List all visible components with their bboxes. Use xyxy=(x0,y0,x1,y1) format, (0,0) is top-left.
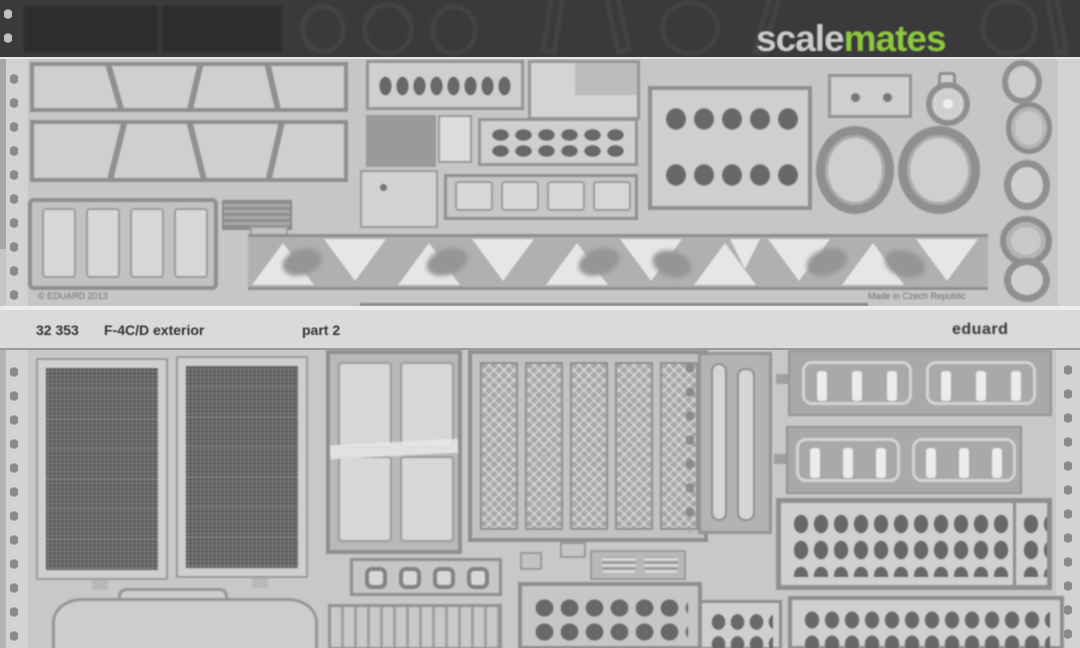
strip-divider xyxy=(265,122,284,182)
window-pane xyxy=(547,181,585,211)
ghost-circle-shape xyxy=(300,4,346,54)
pe-curved-cowl-part xyxy=(52,598,318,648)
pe-slot-panel-1 xyxy=(788,350,1052,416)
window-slot xyxy=(852,371,862,401)
hinge-detail xyxy=(644,557,678,573)
strip-divider xyxy=(107,122,127,182)
sprue-hole-column xyxy=(10,67,18,303)
pe-ring-large xyxy=(816,126,894,214)
pe-strip-round-holes xyxy=(350,558,502,596)
strip-divider xyxy=(187,64,204,112)
window-slot xyxy=(926,448,936,478)
etched-hole-row xyxy=(662,104,802,134)
hinge-detail xyxy=(602,557,636,573)
pe-plate-two-hole-rows xyxy=(648,86,812,210)
pe-round-part xyxy=(1004,160,1050,210)
grille-slat xyxy=(480,362,518,530)
ghost-bar-shape xyxy=(604,0,632,55)
pe-tall-slotted-part xyxy=(698,352,772,534)
window-pane xyxy=(501,181,539,211)
pe-small-tab xyxy=(560,542,586,558)
sheet-right-margin xyxy=(1058,59,1080,308)
pe-perforated-plate-3 xyxy=(698,600,782,648)
pe-mesh-screen-2 xyxy=(176,356,308,578)
eduard-logo-text: eduard xyxy=(952,321,1008,339)
pe-round-part xyxy=(1004,258,1050,302)
etched-hole-grid xyxy=(802,608,1050,648)
watermark-mates-text: mates xyxy=(844,18,946,59)
rounded-hole xyxy=(467,567,489,589)
window-slot xyxy=(992,448,1002,478)
pe-round-part xyxy=(1006,102,1052,154)
etched-hole xyxy=(883,93,892,102)
pe-slot-panel-2 xyxy=(786,426,1022,494)
lower-etch-sheet xyxy=(0,348,1080,648)
sprue-hole-column xyxy=(1064,358,1072,644)
part-number-text: part 2 xyxy=(302,322,340,338)
window-slot xyxy=(959,448,969,478)
pe-round-part xyxy=(1002,60,1042,104)
etched-recess xyxy=(575,63,637,95)
pe-small-tab xyxy=(252,578,268,588)
window-slot xyxy=(876,448,886,478)
grille-slat xyxy=(525,362,563,530)
dark-fret-shape xyxy=(162,6,282,52)
zigzag-cutout xyxy=(472,239,534,281)
window-pane xyxy=(593,181,631,211)
strip-divider xyxy=(106,64,125,112)
window-slot xyxy=(843,448,853,478)
watermark-scale-text: scale xyxy=(756,18,844,59)
strip-divider xyxy=(187,122,207,182)
pe-teardrop-part xyxy=(926,82,970,126)
door-quadrant xyxy=(338,456,392,542)
dark-fret-shape xyxy=(24,6,158,52)
pe-slat-strip-1 xyxy=(30,62,348,112)
door-quadrant xyxy=(400,362,454,448)
pe-small-part xyxy=(520,552,542,570)
etched-hole-row xyxy=(662,160,802,190)
door-pane xyxy=(130,208,164,278)
grille-slat xyxy=(570,362,608,530)
door-pane xyxy=(86,208,120,278)
rounded-hole xyxy=(365,567,387,589)
zigzag-cutout xyxy=(916,239,978,281)
pe-perforated-plate-1 xyxy=(776,498,1052,590)
long-slot xyxy=(737,368,755,521)
pe-perforated-plate-4 xyxy=(518,582,702,648)
pe-mesh-screen-1 xyxy=(36,358,168,580)
window-slot xyxy=(941,371,951,401)
window-slot xyxy=(817,371,827,401)
rounded-hole xyxy=(399,567,421,589)
slot-window-frame xyxy=(796,438,900,482)
window-slot xyxy=(1011,371,1021,401)
etched-hole-grid xyxy=(532,596,688,646)
window-slot xyxy=(887,371,897,401)
pe-door-frame xyxy=(28,198,218,290)
photoetch-product-photo: scalemates xyxy=(0,0,1080,648)
pe-hinge-strip xyxy=(590,550,686,580)
pe-door-panel xyxy=(326,350,462,554)
door-pane xyxy=(174,208,208,278)
ghost-circle-shape xyxy=(430,4,478,56)
pe-tab-plate xyxy=(360,170,438,228)
plate-divider xyxy=(1013,503,1016,585)
connector-tab xyxy=(774,454,786,464)
ghost-bar-shape xyxy=(1045,0,1070,57)
window-slot xyxy=(976,371,986,401)
pe-hatched-grille xyxy=(468,350,708,542)
etched-hole-grid xyxy=(1021,511,1047,577)
connector-tab xyxy=(776,374,788,384)
pe-window-strip xyxy=(444,174,638,220)
grille-slat xyxy=(615,362,653,530)
rounded-hole xyxy=(433,567,455,589)
etched-hole-row xyxy=(377,73,515,99)
made-in-text: Made in Czech Republic xyxy=(868,291,966,301)
pe-plate-hole-pairs xyxy=(478,118,638,166)
window-pane xyxy=(455,181,493,211)
pe-small-plate xyxy=(438,115,472,163)
mesh-grille xyxy=(46,368,158,570)
pe-plate-dark xyxy=(366,115,436,167)
mesh-grille xyxy=(186,366,298,568)
strip-divider xyxy=(265,64,282,112)
ghost-circle-shape xyxy=(980,0,1038,56)
slot-window-frame xyxy=(912,438,1016,482)
pe-small-tab xyxy=(92,580,108,590)
etched-hole xyxy=(943,99,953,109)
ghost-circle-shape xyxy=(362,2,414,56)
zigzag-cutout xyxy=(324,239,386,281)
pe-louver-panel xyxy=(328,604,502,648)
sprue-hole-column xyxy=(4,2,12,56)
door-quadrant xyxy=(400,456,454,542)
etched-hole-grid xyxy=(791,511,1009,577)
pe-small-bracket xyxy=(828,74,912,118)
sprue-hole-column xyxy=(10,360,18,644)
pe-plate-square-holes xyxy=(366,60,524,110)
etched-hole xyxy=(851,93,860,102)
slot-window-frame xyxy=(926,361,1036,405)
etched-hole xyxy=(380,184,387,191)
label-band: 32 353 F-4C/D exterior part 2 eduard xyxy=(0,306,1080,348)
pe-plate-notched xyxy=(528,60,640,120)
sprue-hole-column xyxy=(686,356,694,532)
door-quadrant xyxy=(338,362,392,448)
window-slot xyxy=(810,448,820,478)
pe-slat-strip-2 xyxy=(30,120,348,182)
slot-window-frame xyxy=(802,361,912,405)
upper-etch-sheet: © EDUARD 2013 Made in Czech Republic xyxy=(0,57,1080,306)
sheet-copyright-text: © EDUARD 2013 xyxy=(38,291,108,301)
pe-zigzag-strip xyxy=(248,234,988,290)
long-slot xyxy=(711,363,727,521)
ghost-circle-shape xyxy=(660,0,720,56)
pe-ring-large xyxy=(898,126,980,214)
set-number-text: 32 353 xyxy=(36,322,79,338)
pe-perforated-plate-2 xyxy=(788,596,1064,648)
etched-hole-grid xyxy=(709,611,773,648)
door-pane xyxy=(42,208,76,278)
ghost-bar-shape xyxy=(540,0,565,55)
etched-hole-grid xyxy=(489,127,629,159)
scalemates-watermark: scalemates xyxy=(756,18,946,60)
set-title-text: F-4C/D exterior xyxy=(104,322,204,338)
